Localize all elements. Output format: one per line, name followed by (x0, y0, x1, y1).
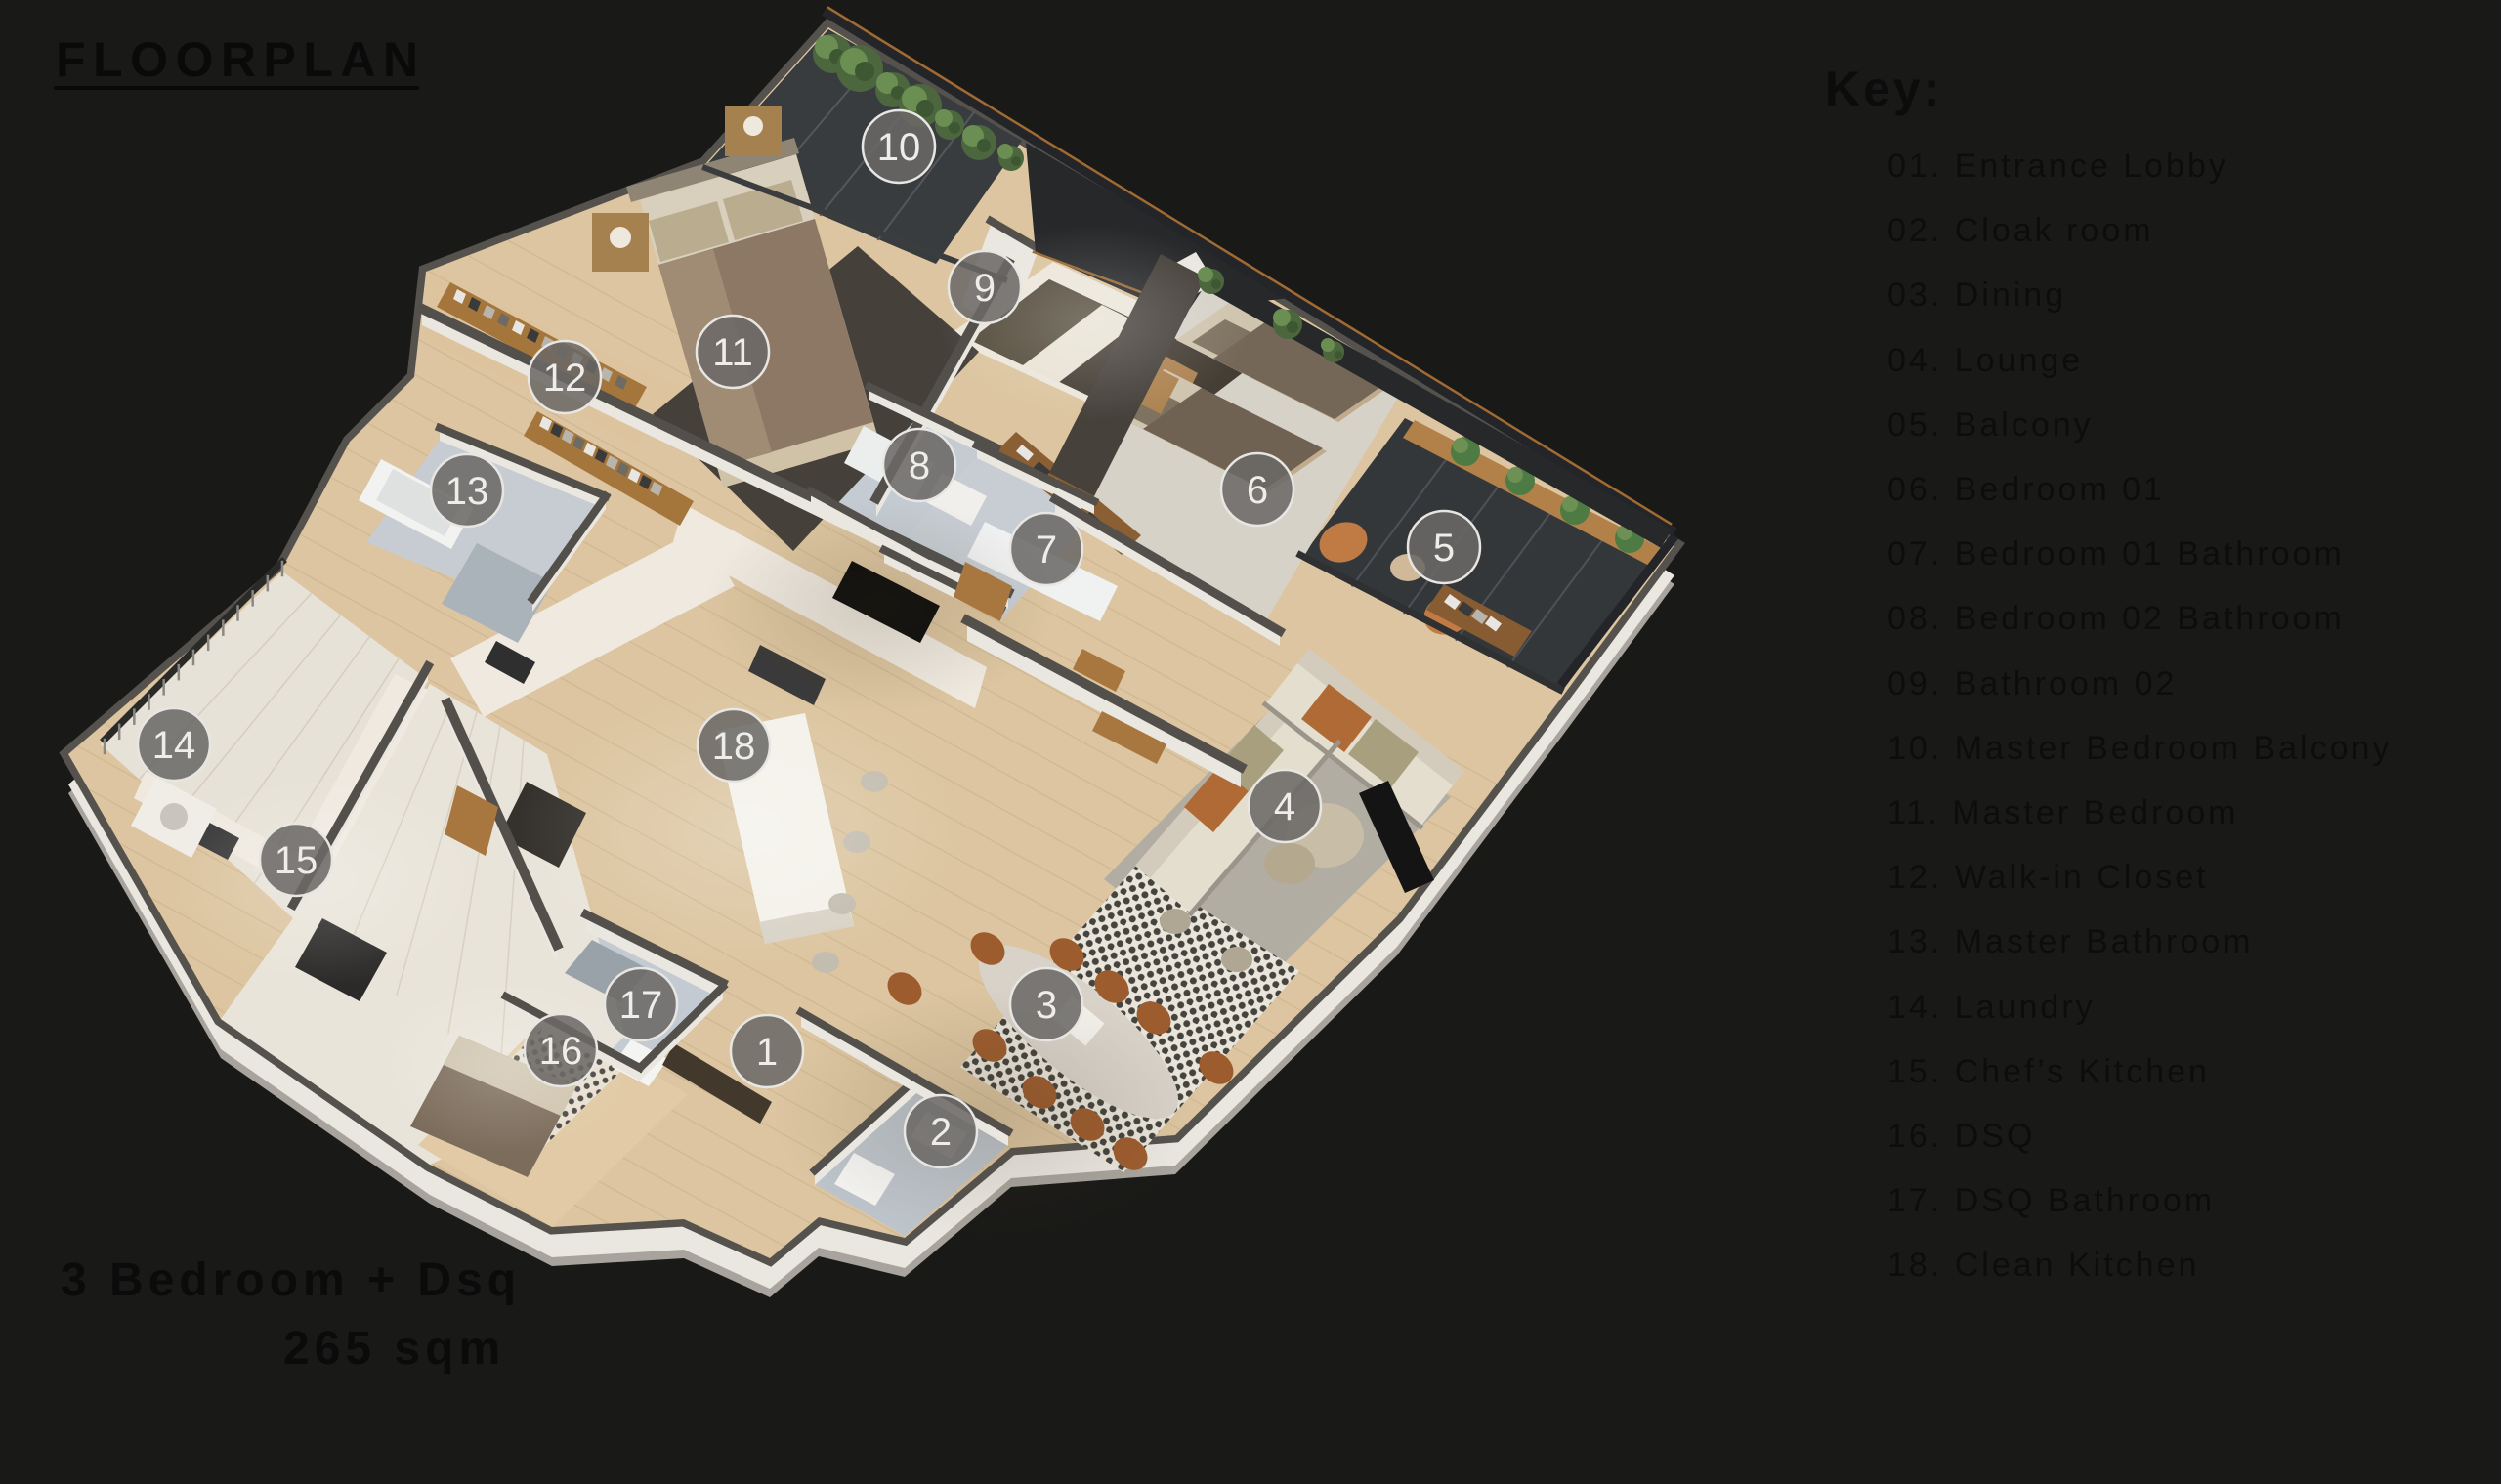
svg-text:FLOORPLAN: FLOORPLAN (56, 32, 426, 87)
svg-text:9: 9 (974, 267, 996, 310)
svg-text:6: 6 (1247, 469, 1268, 512)
svg-text:12. Walk-in Closet: 12. Walk-in Closet (1887, 859, 2209, 896)
svg-text:11. Master Bedroom: 11. Master Bedroom (1887, 794, 2239, 831)
svg-text:3 Bedroom + Dsq: 3 Bedroom + Dsq (61, 1254, 521, 1306)
svg-text:02. Cloak room: 02. Cloak room (1887, 212, 2154, 249)
svg-text:13. Master Bathroom: 13. Master Bathroom (1887, 923, 2253, 960)
svg-text:16: 16 (539, 1030, 583, 1073)
svg-text:11: 11 (712, 331, 753, 374)
svg-text:18: 18 (712, 725, 756, 768)
svg-text:01. Entrance Lobby: 01. Entrance Lobby (1887, 148, 2228, 185)
svg-text:16. DSQ: 16. DSQ (1887, 1118, 2035, 1155)
svg-text:5: 5 (1433, 527, 1455, 570)
svg-text:03. Dining: 03. Dining (1887, 276, 2066, 314)
svg-text:09. Bathroom 02: 09. Bathroom 02 (1887, 665, 2177, 702)
svg-text:15. Chef’s Kitchen: 15. Chef’s Kitchen (1887, 1053, 2210, 1090)
svg-text:8: 8 (909, 445, 930, 488)
svg-text:7: 7 (1036, 529, 1057, 572)
svg-text:18. Clean Kitchen: 18. Clean Kitchen (1887, 1247, 2199, 1284)
svg-text:265 sqm: 265 sqm (283, 1323, 505, 1375)
svg-text:07. Bedroom 01 Bathroom: 07. Bedroom 01 Bathroom (1887, 535, 2345, 572)
svg-text:14: 14 (152, 724, 196, 767)
svg-text:04. Lounge: 04. Lounge (1887, 342, 2083, 379)
svg-text:12: 12 (543, 357, 587, 400)
svg-text:4: 4 (1274, 785, 1295, 828)
svg-text:14. Laundry: 14. Laundry (1887, 989, 2096, 1026)
svg-text:1: 1 (756, 1031, 778, 1074)
svg-text:17. DSQ Bathroom: 17. DSQ Bathroom (1887, 1182, 2215, 1219)
svg-text:15: 15 (275, 839, 318, 882)
svg-text:17: 17 (619, 984, 663, 1027)
svg-text:10. Master Bedroom Balcony: 10. Master Bedroom Balcony (1887, 730, 2392, 767)
svg-text:06. Bedroom 01: 06. Bedroom 01 (1887, 471, 2165, 508)
svg-text:08. Bedroom 02 Bathroom: 08. Bedroom 02 Bathroom (1887, 600, 2345, 637)
svg-text:05. Balcony: 05. Balcony (1887, 406, 2094, 444)
svg-text:Key:: Key: (1825, 62, 1942, 116)
svg-text:13: 13 (445, 470, 489, 513)
svg-text:10: 10 (877, 126, 921, 169)
svg-text:2: 2 (930, 1111, 952, 1154)
svg-text:3: 3 (1036, 984, 1057, 1027)
